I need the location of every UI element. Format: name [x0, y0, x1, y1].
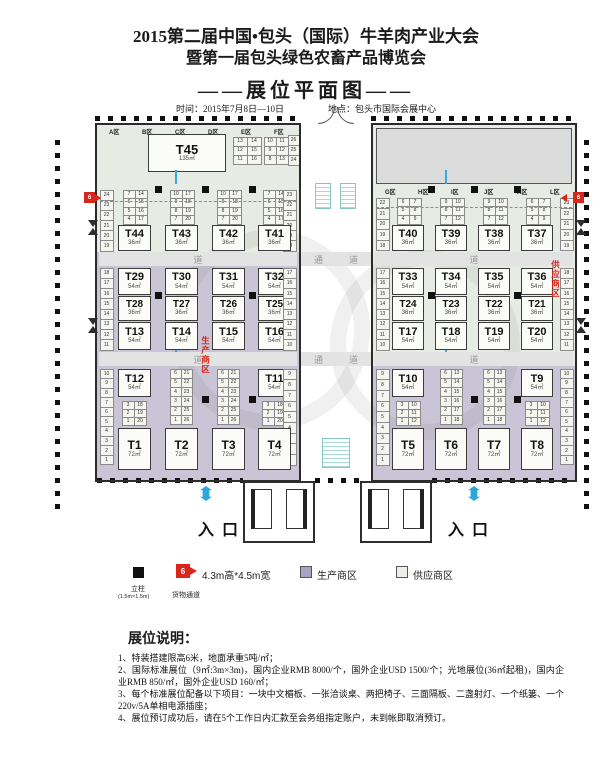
booth-size: 36㎡ — [268, 240, 281, 247]
revolving-door-icon — [88, 318, 99, 333]
booth-size: 54㎡ — [445, 338, 458, 345]
booth-number-grid: 613514415316217118 — [483, 369, 505, 425]
booth-size: 36㎡ — [402, 310, 415, 317]
booth-size: 54㎡ — [402, 284, 415, 291]
vestibule — [360, 481, 432, 543]
band-crossing: 通道 — [301, 252, 371, 266]
column-marker — [249, 186, 256, 193]
booth-id: T24 — [399, 300, 416, 311]
booth-id: T42 — [219, 229, 238, 241]
booth-T41: T4136㎡ — [258, 225, 291, 251]
stairs-icon — [340, 183, 356, 209]
goods-channel-num: 6 — [573, 192, 584, 203]
column-marker — [428, 186, 435, 193]
booth-number-grid: 613514415316217118 — [440, 369, 462, 425]
booth-id: T41 — [265, 229, 284, 241]
hall-aisle-band: 道 — [99, 252, 297, 266]
booth-size: 72㎡ — [402, 452, 415, 459]
booth-id: T32 — [265, 272, 284, 284]
booth-number-grid: 621522423324225126 — [170, 369, 192, 425]
booth-size: 54㎡ — [128, 385, 141, 392]
booth-id: T30 — [172, 272, 191, 284]
booth-T10: T1054㎡ — [392, 369, 424, 397]
edge-booth-strip: 1817161514131211 — [100, 268, 113, 350]
booth-id: T8 — [530, 439, 544, 452]
booth-cell: 12 — [537, 417, 550, 426]
booth-T39: T3936㎡ — [435, 225, 467, 251]
goods-channel-icon: 6 — [84, 192, 104, 204]
supply-legend-swatch — [396, 566, 408, 578]
booth-cell: 12 — [408, 417, 421, 426]
booth-T5: T572㎡ — [392, 428, 424, 470]
goods-channel-icon: 6 — [176, 564, 190, 578]
edge-booth-strip: 1716151413121110 — [283, 268, 296, 350]
booth-cell: 17 — [135, 215, 148, 225]
edge-booth-strip: 987654321 — [376, 369, 389, 465]
booth-size: 36㎡ — [175, 310, 188, 317]
column-marker — [514, 396, 521, 403]
production-legend-label: 生产商区 — [317, 567, 357, 582]
poster-page: 2015第二届中国•包头（国际）牛羊肉产业大会 暨第一届包头绿色农畜产品博览会 … — [0, 0, 612, 781]
zone-label: F区 — [274, 127, 284, 136]
zone-label: E区 — [241, 127, 251, 136]
booth-size: 54㎡ — [268, 284, 281, 291]
booth-id: T25 — [266, 300, 283, 311]
note-item: 1、特装搭建限高6米，地面承重5吨/㎡； — [118, 652, 564, 664]
booth-number-grid: 131412151116 — [233, 137, 261, 164]
aisle-char: 道 — [193, 253, 202, 266]
booth-number-grid: 310211112 — [525, 401, 549, 425]
booth-cell: 9 — [409, 215, 422, 225]
column-marker — [155, 292, 162, 299]
booth-T43: T4336㎡ — [165, 225, 198, 251]
booth-id: T28 — [126, 300, 143, 311]
booth-size: 54㎡ — [128, 338, 141, 345]
strip-cell: 24 — [288, 155, 300, 166]
booth-T8: T872㎡ — [521, 428, 553, 470]
zone-label: L区 — [550, 187, 560, 196]
booth-T2: T272㎡ — [165, 428, 198, 470]
booth-id: T39 — [442, 229, 461, 241]
booth-T44: T4436㎡ — [118, 225, 151, 251]
strip-cell: 10 — [283, 339, 297, 350]
booth-id: T4 — [267, 439, 281, 452]
vestibule-door — [286, 489, 307, 529]
column-marker — [471, 396, 478, 403]
booth-size: 36㎡ — [222, 240, 235, 247]
booth-id: T34 — [442, 272, 461, 284]
stage-area — [376, 128, 572, 184]
booth-id: T6 — [444, 439, 458, 452]
booth-size: 36㎡ — [128, 310, 141, 317]
booth-number-grid: 310211112 — [396, 401, 420, 425]
strip-cell: 1 — [376, 454, 390, 466]
booth-size: 54㎡ — [402, 385, 415, 392]
booth-T4: T472㎡ — [258, 428, 291, 470]
notes-body: 1、特装搭建限高6米，地面承重5吨/㎡；2、国际标准展位（9㎡:3m×3m)，国… — [118, 652, 564, 724]
booth-id: T7 — [487, 439, 501, 452]
booth-size: 54㎡ — [488, 284, 501, 291]
booth-size: 36㎡ — [175, 240, 188, 247]
booth-T13: T1354㎡ — [118, 322, 151, 350]
vestibule-door — [368, 489, 389, 529]
booth-size: 72㎡ — [445, 452, 458, 459]
booth-size: 54㎡ — [488, 338, 501, 345]
booth-number-grid: 318219120 — [122, 401, 146, 425]
booth-T36: T3654㎡ — [521, 268, 553, 295]
booth-T28: T2836㎡ — [118, 296, 151, 321]
booth-T14: T1454㎡ — [165, 322, 198, 350]
booth-T34: T3454㎡ — [435, 268, 467, 295]
booth-id: T11 — [265, 374, 283, 386]
column-marker — [155, 186, 162, 193]
zone-label: J区 — [484, 187, 493, 196]
booth-size: 72㎡ — [488, 452, 501, 459]
booth-size: 36㎡ — [268, 310, 281, 317]
stairs-icon — [315, 183, 331, 209]
booth-id: T33 — [399, 272, 418, 284]
booth-size: 54㎡ — [531, 338, 544, 345]
utility-line — [100, 201, 296, 202]
booth-size: 36㎡ — [402, 240, 415, 247]
column-legend-label: 立柱 — [131, 584, 145, 594]
strip-cell: 19 — [560, 240, 574, 252]
zone-label: I区 — [451, 187, 459, 196]
column-marker — [514, 186, 521, 193]
booth-T15: T1554㎡ — [212, 322, 245, 350]
booth-T17: T1754㎡ — [392, 322, 424, 350]
booth-size: 36㎡ — [531, 310, 544, 317]
booth-T9: T954㎡ — [521, 369, 553, 397]
supply-legend-label: 供应商区 — [413, 567, 453, 582]
booth-number-grid: 714615516417 — [123, 190, 147, 224]
booth-id: T3 — [221, 439, 235, 452]
booth-id: T19 — [485, 327, 504, 339]
booth-cell: 26 — [181, 415, 193, 425]
booth-size: 54㎡ — [402, 338, 415, 345]
outer-wall-left — [55, 140, 60, 515]
booth-size: 54㎡ — [222, 284, 235, 291]
entrance-door-arc — [337, 107, 354, 124]
booth-T29: T2954㎡ — [118, 268, 151, 295]
booth-id: T31 — [219, 272, 238, 284]
vestibule — [243, 481, 315, 543]
booth-size: 36㎡ — [531, 240, 544, 247]
outer-wall-bottom — [432, 478, 575, 483]
booth-T20: T2054㎡ — [521, 322, 553, 350]
edge-booth-strip: 1716151413121110 — [376, 268, 389, 350]
corridor-char: 道 — [349, 253, 358, 266]
aisle-char: 道 — [469, 253, 478, 266]
booth-number-grid: 910811712 — [440, 198, 464, 224]
booth-cell: 20 — [134, 417, 147, 426]
booth-T3: T372㎡ — [212, 428, 245, 470]
booth-size: 36㎡ — [488, 310, 501, 317]
booth-T30: T3054㎡ — [165, 268, 198, 295]
stairs-icon — [322, 438, 350, 468]
booth-id: T40 — [399, 229, 418, 241]
booth-T21: T2136㎡ — [521, 296, 553, 321]
outer-wall-bottom — [97, 478, 243, 483]
booth-size: 36㎡ — [445, 240, 458, 247]
zone-label: A区 — [109, 127, 119, 136]
booth-id: T15 — [219, 327, 238, 339]
booth-id: T23 — [442, 300, 459, 311]
column-marker — [249, 396, 256, 403]
booth-cell: 12 — [452, 215, 465, 225]
strip-cell: 18 — [376, 240, 390, 252]
edge-booth-strip: 2322212019 — [560, 198, 573, 251]
booth-T31: T3154㎡ — [212, 268, 245, 295]
booth-number-grid: 675849 — [526, 198, 550, 224]
outer-wall-bottom — [315, 478, 360, 483]
booth-size: 54㎡ — [445, 284, 458, 291]
booth-T12: T1254㎡ — [118, 369, 151, 397]
edge-booth-strip: 262524 — [288, 135, 299, 165]
column-marker — [514, 292, 521, 299]
booth-size: 72㎡ — [222, 452, 235, 459]
booth-size: 36㎡ — [488, 240, 501, 247]
booth-T1: T172㎡ — [118, 428, 151, 470]
booth-cell: 9 — [538, 215, 551, 225]
booth-cell: 20 — [229, 215, 242, 225]
booth-id: T17 — [399, 327, 418, 339]
strip-cell: 1 — [100, 455, 114, 466]
strip-cell: 11 — [100, 339, 114, 350]
booth-T18: T1854㎡ — [435, 322, 467, 350]
booth-size: 54㎡ — [128, 284, 141, 291]
utility-line — [376, 207, 572, 208]
zone-label: H区 — [418, 187, 428, 196]
column-legend-swatch — [133, 567, 144, 578]
booth-T40: T4036㎡ — [392, 225, 424, 251]
booth-T42: T4236㎡ — [212, 225, 245, 251]
corridor-char: 通 — [314, 353, 323, 366]
booth-cell: 26 — [228, 415, 240, 425]
booth-size: 72㎡ — [531, 452, 544, 459]
zone-label: G区 — [385, 187, 396, 196]
floor-plan: 通道通道道道道道A区B区C区D区E区F区T45135㎡1314121511161… — [0, 0, 612, 560]
booth-T45: T45135㎡ — [148, 134, 226, 172]
booth-number-grid: 1017918819720 — [170, 190, 194, 224]
strip-cell: 11 — [560, 339, 574, 350]
revolving-door-icon — [576, 318, 587, 333]
entrance-door-arc — [318, 107, 335, 124]
booth-size: 54㎡ — [531, 284, 544, 291]
booth-cell: 11 — [233, 155, 248, 165]
booth-number-grid: 621522423324225126 — [217, 369, 239, 425]
info-marker-icon — [468, 486, 480, 501]
strip-cell: 10 — [376, 339, 390, 350]
booth-size: 54㎡ — [175, 338, 188, 345]
edge-booth-strip: 2221201918 — [376, 198, 389, 251]
booth-id: T45 — [176, 143, 198, 157]
note-item: 3、每个标准展位配备以下项目：一块中文楣板、一张洽谈桌、两把椅子、三面隔板、二盏… — [118, 688, 564, 712]
booth-size: 36㎡ — [445, 310, 458, 317]
production-area-label: 生产商区 — [201, 336, 210, 388]
booth-id: T27 — [173, 300, 190, 311]
booth-id: T37 — [528, 229, 547, 241]
strip-cell: 19 — [100, 240, 114, 251]
booth-id: T22 — [485, 300, 502, 311]
column-marker — [428, 292, 435, 299]
booth-size: 54㎡ — [531, 385, 544, 392]
note-item: 2、国际标准展位（9㎡:3m×3m)，国内企业RMB 8000/个，国外企业US… — [118, 664, 564, 688]
notes-heading: 展位说明： — [128, 628, 198, 648]
booth-cell: 20 — [182, 215, 195, 225]
band-crossing: 通道 — [301, 352, 371, 366]
booth-T23: T2336㎡ — [435, 296, 467, 321]
booth-T6: T672㎡ — [435, 428, 467, 470]
booth-id: T26 — [220, 300, 237, 311]
booth-size: 36㎡ — [128, 240, 141, 247]
goods-channel-icon: 6 — [567, 192, 587, 204]
vestibule-door — [251, 489, 272, 529]
booth-id: T10 — [399, 374, 418, 386]
column-marker — [202, 396, 209, 403]
vestibule-door — [403, 489, 424, 529]
revolving-door-icon — [88, 220, 99, 235]
legend: 立柱 (1.5m×1.5m) 6 4.3m高*4.5m宽 货物通道 生产商区 供… — [0, 560, 612, 620]
booth-id: T20 — [528, 327, 547, 339]
column-legend-dims: (1.5m×1.5m) — [118, 594, 149, 600]
outer-wall-top — [371, 116, 577, 121]
booth-size: 135㎡ — [179, 156, 195, 163]
booth-id: T14 — [172, 327, 191, 339]
booth-id: T1 — [127, 439, 141, 452]
booth-T24: T2436㎡ — [392, 296, 424, 321]
note-item: 4、展位预订成功后，请在5个工作日内汇款至会务组指定账户，未到帐即取消预订。 — [118, 712, 564, 724]
entrance-label: 入口 — [448, 516, 496, 540]
booth-id: T13 — [125, 327, 144, 339]
booth-size: 72㎡ — [268, 452, 281, 459]
outer-wall-top — [95, 116, 301, 121]
column-marker — [202, 186, 209, 193]
booth-T37: T3736㎡ — [521, 225, 553, 251]
supply-area-label: 供应商区 — [551, 260, 560, 316]
booth-size: 54㎡ — [268, 338, 281, 345]
goods-arrow — [561, 194, 567, 202]
booth-id: T35 — [485, 272, 504, 284]
utility-tick — [445, 170, 447, 184]
booth-cell: 16 — [247, 155, 262, 165]
hall-aisle-band: 道 — [375, 252, 573, 266]
booth-T22: T2236㎡ — [478, 296, 510, 321]
hall-aisle-band: 道 — [99, 352, 297, 366]
booth-T38: T3836㎡ — [478, 225, 510, 251]
edge-booth-strip: 10987654321 — [560, 369, 573, 465]
booth-cell: 18 — [451, 415, 463, 425]
booth-size: 72㎡ — [128, 452, 141, 459]
edge-booth-strip: 1817161514131211 — [560, 268, 573, 350]
booth-id: T29 — [125, 272, 144, 284]
goods-arrow — [95, 194, 101, 202]
booth-size: 36㎡ — [222, 310, 235, 317]
booth-id: T21 — [528, 300, 545, 311]
booth-size: 54㎡ — [222, 338, 235, 345]
goods-channel-label: 货物通道 — [172, 590, 200, 600]
booth-T33: T3354㎡ — [392, 268, 424, 295]
production-legend-swatch — [300, 566, 312, 578]
booth-id: T2 — [174, 439, 188, 452]
booth-number-grid: 1011912813 — [264, 137, 288, 164]
corridor-char: 通 — [314, 253, 323, 266]
strip-cell: 1 — [560, 455, 574, 466]
booth-id: T18 — [442, 327, 461, 339]
booth-size: 54㎡ — [175, 284, 188, 291]
booth-cell: 12 — [495, 215, 508, 225]
goods-dims-label: 4.3m高*4.5m宽 — [202, 567, 270, 582]
booth-size: 54㎡ — [268, 385, 281, 392]
column-marker — [249, 292, 256, 299]
info-marker-icon — [200, 486, 212, 501]
booth-id: T12 — [125, 374, 144, 386]
booth-id: T44 — [125, 229, 144, 241]
goods-channel-num: 6 — [84, 192, 95, 203]
column-marker — [471, 186, 478, 193]
utility-tick — [175, 170, 177, 184]
booth-T35: T3554㎡ — [478, 268, 510, 295]
hall-aisle-band: 道 — [375, 352, 573, 366]
booth-T26: T2636㎡ — [212, 296, 245, 321]
booth-T27: T2736㎡ — [165, 296, 198, 321]
booth-number-grid: 675849 — [397, 198, 421, 224]
booth-T19: T1954㎡ — [478, 322, 510, 350]
booth-id: T9 — [531, 374, 544, 386]
edge-booth-strip: 10987654321 — [100, 369, 113, 465]
booth-size: 72㎡ — [175, 452, 188, 459]
booth-T7: T772㎡ — [478, 428, 510, 470]
booth-id: T16 — [265, 327, 284, 339]
booth-id: T36 — [528, 272, 547, 284]
booth-number-grid: 910811712 — [483, 198, 507, 224]
corridor-char: 道 — [349, 353, 358, 366]
aisle-char: 道 — [469, 353, 478, 366]
booth-id: T43 — [172, 229, 191, 241]
booth-id: T38 — [485, 229, 504, 241]
booth-cell: 18 — [494, 415, 506, 425]
booth-id: T5 — [401, 439, 415, 452]
entrance-label: 入口 — [198, 516, 246, 540]
revolving-door-icon — [576, 220, 587, 235]
booth-number-grid: 1017918819720 — [217, 190, 241, 224]
